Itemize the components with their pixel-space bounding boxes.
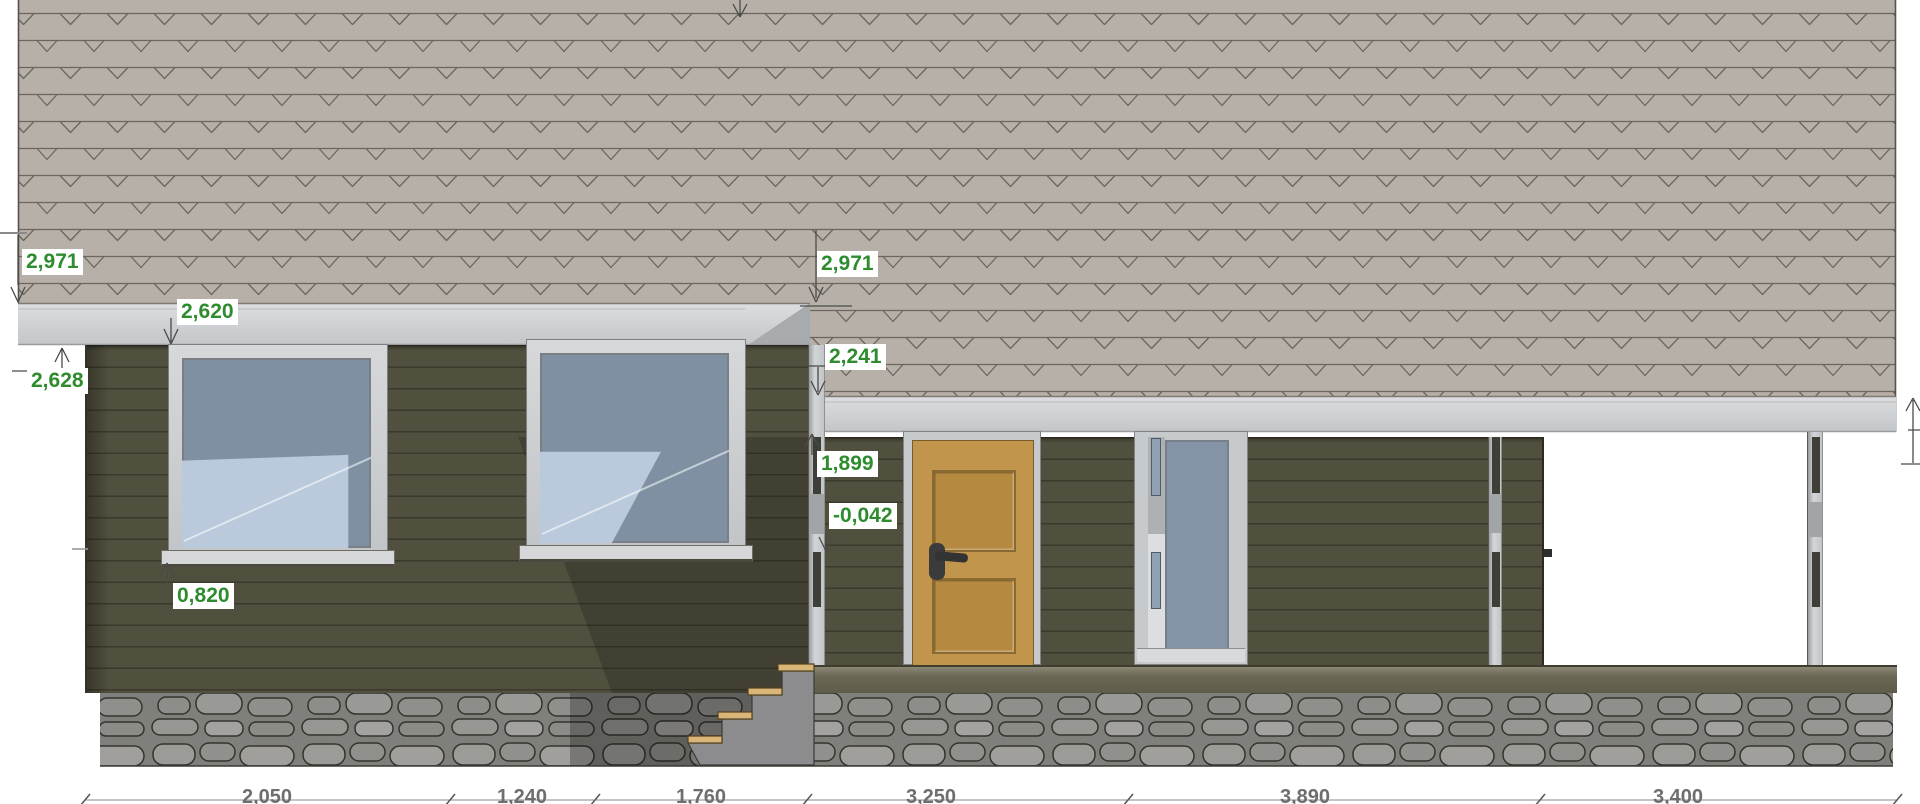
porch-post-right bbox=[1807, 432, 1823, 665]
dim-label-porch-beam: 1,899 bbox=[817, 451, 878, 477]
width-dim-5: 3,890 bbox=[1280, 786, 1330, 804]
window-right bbox=[526, 339, 746, 551]
width-dim-4: 3,250 bbox=[906, 786, 956, 804]
corner-fixture bbox=[1544, 549, 1552, 557]
stone-foundation bbox=[100, 693, 1893, 766]
door-leaf bbox=[912, 440, 1034, 666]
width-dim-3: 1,760 bbox=[676, 786, 726, 804]
width-dim-6: 3,400 bbox=[1653, 786, 1703, 804]
dim-label-window-sill: 0,820 bbox=[173, 583, 234, 609]
window-right-sill bbox=[519, 545, 753, 562]
sidelight-slot-lower bbox=[1151, 552, 1161, 609]
wall-corner-shade bbox=[87, 345, 109, 693]
foundation-shadow bbox=[570, 693, 810, 766]
dim-label-fascia-mid: 2,241 bbox=[825, 344, 886, 370]
sidelight-slot-upper bbox=[1151, 438, 1161, 496]
window-left-sill bbox=[161, 550, 395, 567]
sidelight-glass bbox=[1165, 440, 1229, 656]
width-dim-1: 2,050 bbox=[242, 786, 292, 804]
sidelight-sill bbox=[1137, 648, 1245, 662]
dim-label-porch-floor: -0,042 bbox=[829, 503, 897, 529]
window-left-glass bbox=[182, 358, 371, 548]
house-elevation-drawing: 2,971 2,620 2,628 2,971 2,241 1,899 0,82… bbox=[0, 0, 1920, 804]
window-left bbox=[168, 344, 388, 556]
dim-label-soffit-left: 2,620 bbox=[177, 299, 238, 325]
sidelight-window bbox=[1134, 431, 1248, 665]
width-dim-2: 1,240 bbox=[497, 786, 547, 804]
porch-post-corner bbox=[808, 345, 825, 665]
deck-band bbox=[810, 665, 1897, 693]
porch-post-mid bbox=[1488, 437, 1502, 665]
dim-label-eave-mid: 2,971 bbox=[817, 251, 878, 277]
entry-door bbox=[903, 431, 1041, 665]
dim-label-fascia-left: 2,628 bbox=[27, 368, 88, 394]
door-panel-lower bbox=[932, 578, 1016, 654]
window-right-glass bbox=[540, 353, 729, 543]
door-panel-upper bbox=[932, 470, 1016, 552]
dim-label-eave-left: 2,971 bbox=[22, 249, 83, 275]
fascia-main bbox=[810, 396, 1896, 432]
door-handle-plate bbox=[929, 543, 945, 580]
